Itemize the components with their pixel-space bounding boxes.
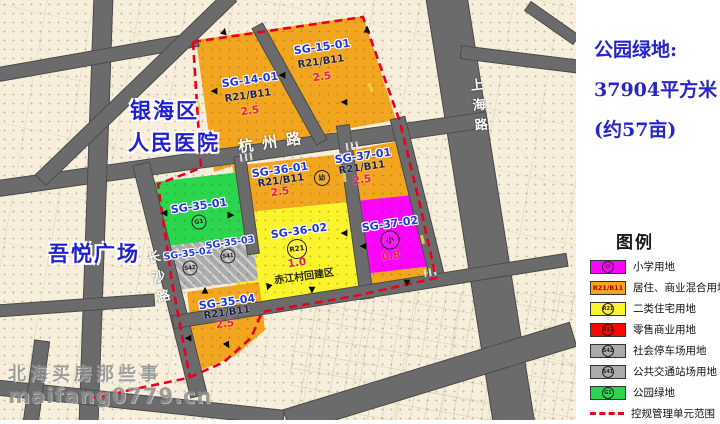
landmark-label: 吾悦广场 <box>48 238 140 268</box>
legend-label: 公共交通站场用地 <box>633 364 717 379</box>
legend-label: 居住、商业混合用地 <box>633 280 720 295</box>
legend-item: 控规管理单元范围 <box>590 403 720 424</box>
direction-arrow-icon: ◀ <box>185 335 192 344</box>
direction-arrow-icon: ▼ <box>404 280 411 289</box>
direction-arrow-icon: ▲ <box>364 26 371 35</box>
park-symbol: G1 <box>602 387 614 399</box>
zone-far-label: 2.5 <box>312 70 332 84</box>
direction-arrow-icon: ◀ <box>211 88 218 97</box>
watermark: 北海买房那些事 maifang0779.cn <box>8 360 212 408</box>
legend-item: S42 社会停车场用地 <box>590 340 720 361</box>
side-panel: 公园绿地: 37904平方米 (约57亩) 图例 小 小学用地 R21/B11 … <box>576 0 720 420</box>
direction-arrow-icon: ▲ <box>202 287 209 296</box>
mixed-use-code: R21/B11 <box>593 284 623 292</box>
legend-swatch-transit: S41 <box>590 365 626 379</box>
district-label-line2: 人民医院 <box>128 127 220 157</box>
legend-label: 小学用地 <box>633 259 675 274</box>
legend-swatch-retail: B11 <box>590 323 626 337</box>
legend-item: B11 零售商业用地 <box>590 319 720 340</box>
zone-far-label: 2.5 <box>270 185 290 199</box>
park-area-callout: 公园绿地: 37904平方米 (约57亩) <box>594 30 717 150</box>
legend-item: G1 公园绿地 <box>590 382 720 403</box>
legend-swatch-school: 小 <box>590 260 626 274</box>
planning-map-screenshot: ◀ ◀ ▲ ◀ ▲ ◀ ▶ ◀ ▼ ▼ ◀ ▼ ▲ ◀ ▼ SG-14-01 R… <box>0 0 720 420</box>
callout-line1: 公园绿地: <box>594 30 717 70</box>
legend-item: R21 二类住宅用地 <box>590 298 720 319</box>
retail-symbol: B11 <box>602 324 614 336</box>
zone-far-label: 2.5 <box>240 104 260 118</box>
map-canvas: ◀ ◀ ▲ ◀ ▲ ◀ ▶ ◀ ▼ ▼ ◀ ▼ ▲ ◀ ▼ SG-14-01 R… <box>0 0 576 420</box>
watermark-text: 北海买房那些事 <box>8 360 212 386</box>
school-symbol: 小 <box>602 261 614 273</box>
direction-arrow-icon: ◀ <box>161 210 168 219</box>
legend-item: 小 小学用地 <box>590 256 720 277</box>
legend-label: 公园绿地 <box>633 385 675 400</box>
legend-title: 图例 <box>616 228 654 253</box>
watermark-url: maifang0779.cn <box>8 384 212 408</box>
zone-far-label: 2.5 <box>352 173 372 187</box>
callout-line2: 37904平方米 <box>594 70 717 110</box>
legend-label: 社会停车场用地 <box>633 343 707 358</box>
direction-arrow-icon: ▼ <box>309 287 316 296</box>
callout-line3: (约57亩) <box>594 110 717 150</box>
legend-swatch-parking: S42 <box>590 344 626 358</box>
legend-item: R21/B11 居住、商业混合用地 <box>590 277 720 298</box>
parking-symbol: S42 <box>602 345 614 357</box>
direction-arrow-icon: ◀ <box>341 99 348 108</box>
direction-arrow-icon: ◀ <box>341 230 348 239</box>
legend-swatch-mixed: R21/B11 <box>590 281 626 295</box>
residential-symbol: R21 <box>602 303 614 315</box>
legend-label: 零售商业用地 <box>633 322 696 337</box>
district-label-line1: 银海区 <box>130 95 199 125</box>
legend-swatch-residential: R21 <box>590 302 626 316</box>
legend: 小 小学用地 R21/B11 居住、商业混合用地 R21 二类住宅用地 B11 … <box>590 256 720 424</box>
legend-label: 控规管理单元范围 <box>631 406 715 421</box>
zone-far-label: 0.8 <box>381 249 401 263</box>
legend-swatch-park: G1 <box>590 386 626 400</box>
direction-arrow-icon: ◀ <box>279 72 286 81</box>
boundary-dash-icon <box>590 412 624 415</box>
legend-item: S41 公共交通站场用地 <box>590 361 720 382</box>
zone-far-label: 2.5 <box>215 317 235 331</box>
direction-arrow-icon: ▶ <box>228 212 235 221</box>
legend-label: 二类住宅用地 <box>633 301 696 316</box>
transit-symbol: S41 <box>602 366 614 378</box>
direction-arrow-icon: ◀ <box>360 243 367 252</box>
